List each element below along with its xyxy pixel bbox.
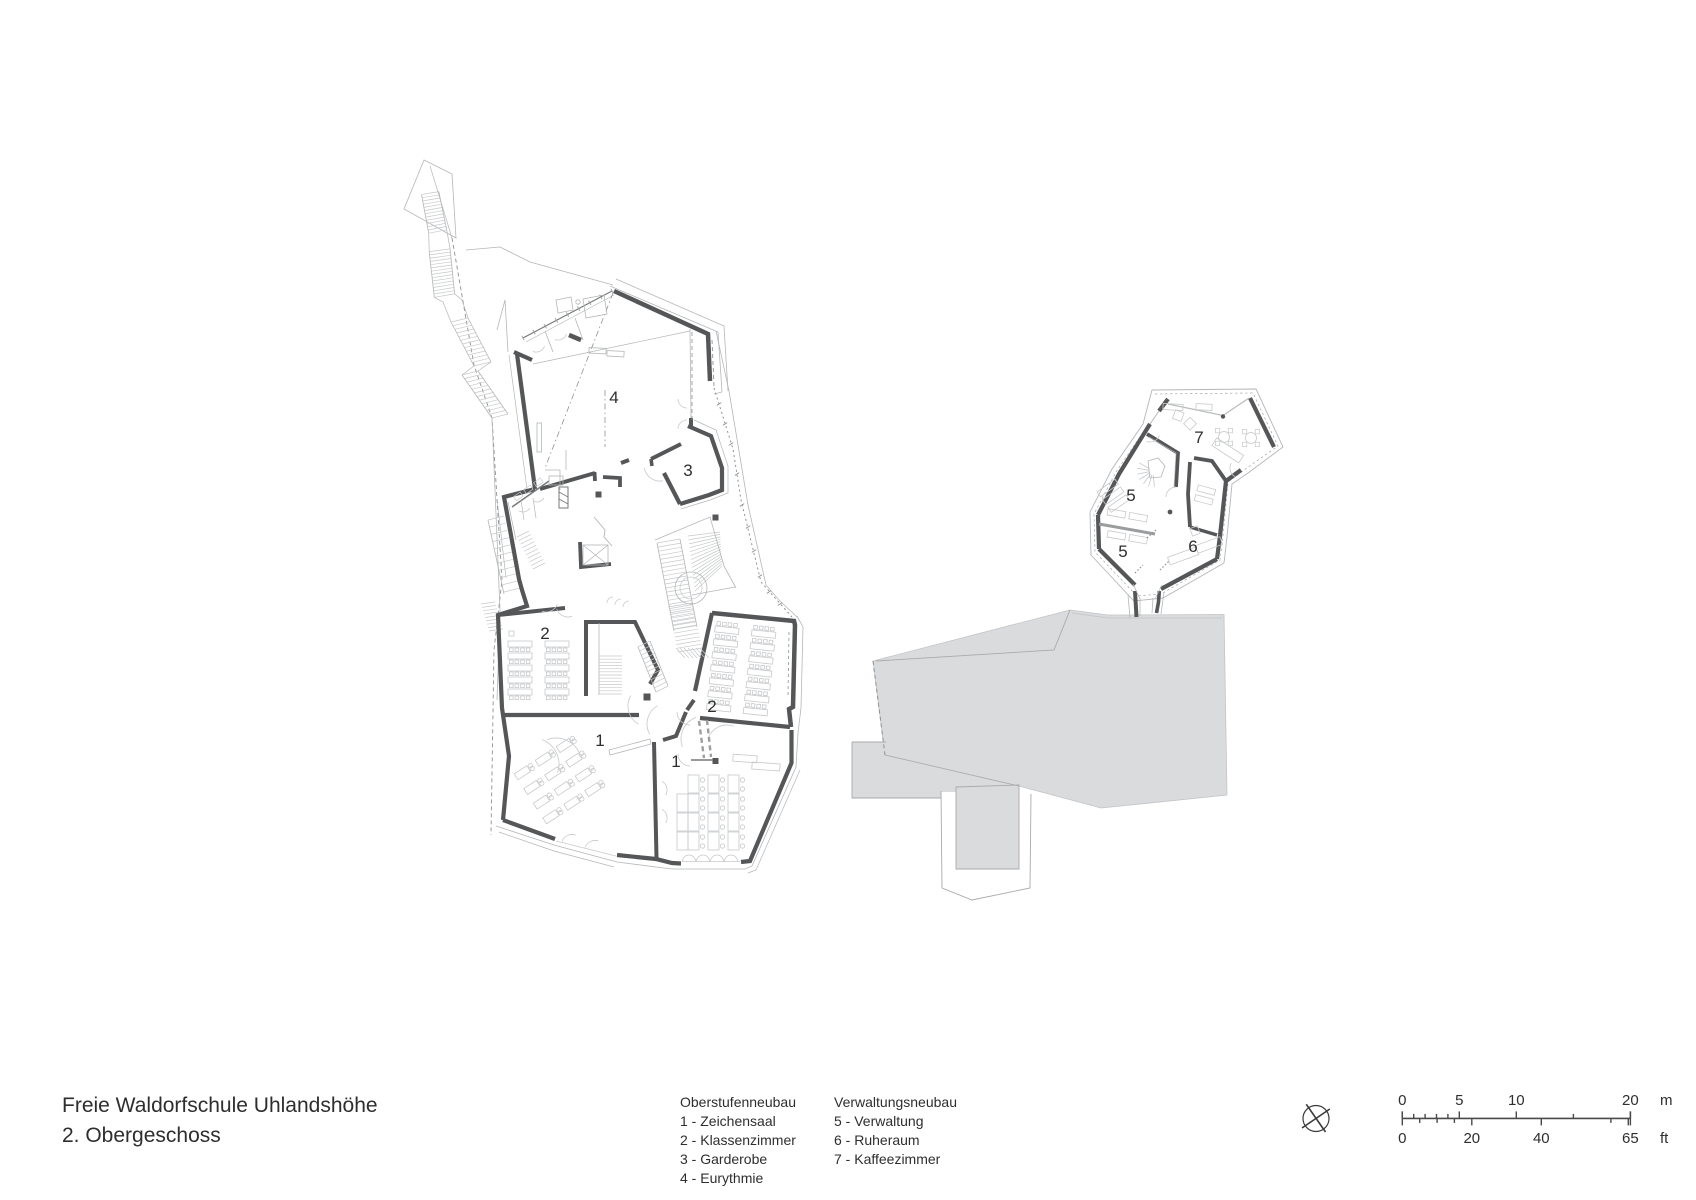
svg-text:5: 5 <box>1455 1092 1463 1109</box>
svg-text:0: 0 <box>1398 1092 1406 1109</box>
svg-text:6: 6 <box>1188 537 1197 556</box>
svg-text:4: 4 <box>609 388 618 407</box>
svg-text:Verwaltungsneubau: Verwaltungsneubau <box>834 1094 957 1110</box>
svg-text:5: 5 <box>1118 542 1127 561</box>
svg-text:m: m <box>1660 1092 1673 1109</box>
svg-text:4 - Eurythmie: 4 - Eurythmie <box>680 1170 763 1186</box>
svg-text:3 - Garderobe: 3 - Garderobe <box>680 1151 767 1167</box>
svg-text:10: 10 <box>1508 1092 1525 1109</box>
svg-text:3: 3 <box>683 461 692 480</box>
svg-text:20: 20 <box>1463 1130 1480 1147</box>
svg-text:65: 65 <box>1622 1130 1639 1147</box>
svg-text:0: 0 <box>1398 1130 1406 1147</box>
svg-text:1: 1 <box>595 731 604 750</box>
svg-text:2: 2 <box>707 697 716 716</box>
svg-text:20: 20 <box>1622 1092 1639 1109</box>
svg-text:1: 1 <box>671 752 680 771</box>
svg-text:7: 7 <box>1194 428 1203 447</box>
svg-text:Freie Waldorfschule Uhlandshöh: Freie Waldorfschule Uhlandshöhe <box>62 1094 378 1117</box>
svg-text:6 - Ruheraum: 6 - Ruheraum <box>834 1132 920 1148</box>
svg-text:5 - Verwaltung: 5 - Verwaltung <box>834 1113 924 1129</box>
svg-text:40: 40 <box>1533 1130 1550 1147</box>
svg-text:5: 5 <box>1126 486 1135 505</box>
svg-text:7 - Kaffeezimmer: 7 - Kaffeezimmer <box>834 1151 941 1167</box>
svg-text:2 - Klassenzimmer: 2 - Klassenzimmer <box>680 1132 796 1148</box>
svg-text:Oberstufenneubau: Oberstufenneubau <box>680 1094 796 1110</box>
svg-text:2: 2 <box>540 624 549 643</box>
svg-text:1 - Zeichensaal: 1 - Zeichensaal <box>680 1113 776 1129</box>
svg-text:ft: ft <box>1660 1130 1669 1147</box>
svg-text:2. Obergeschoss: 2. Obergeschoss <box>62 1124 221 1147</box>
